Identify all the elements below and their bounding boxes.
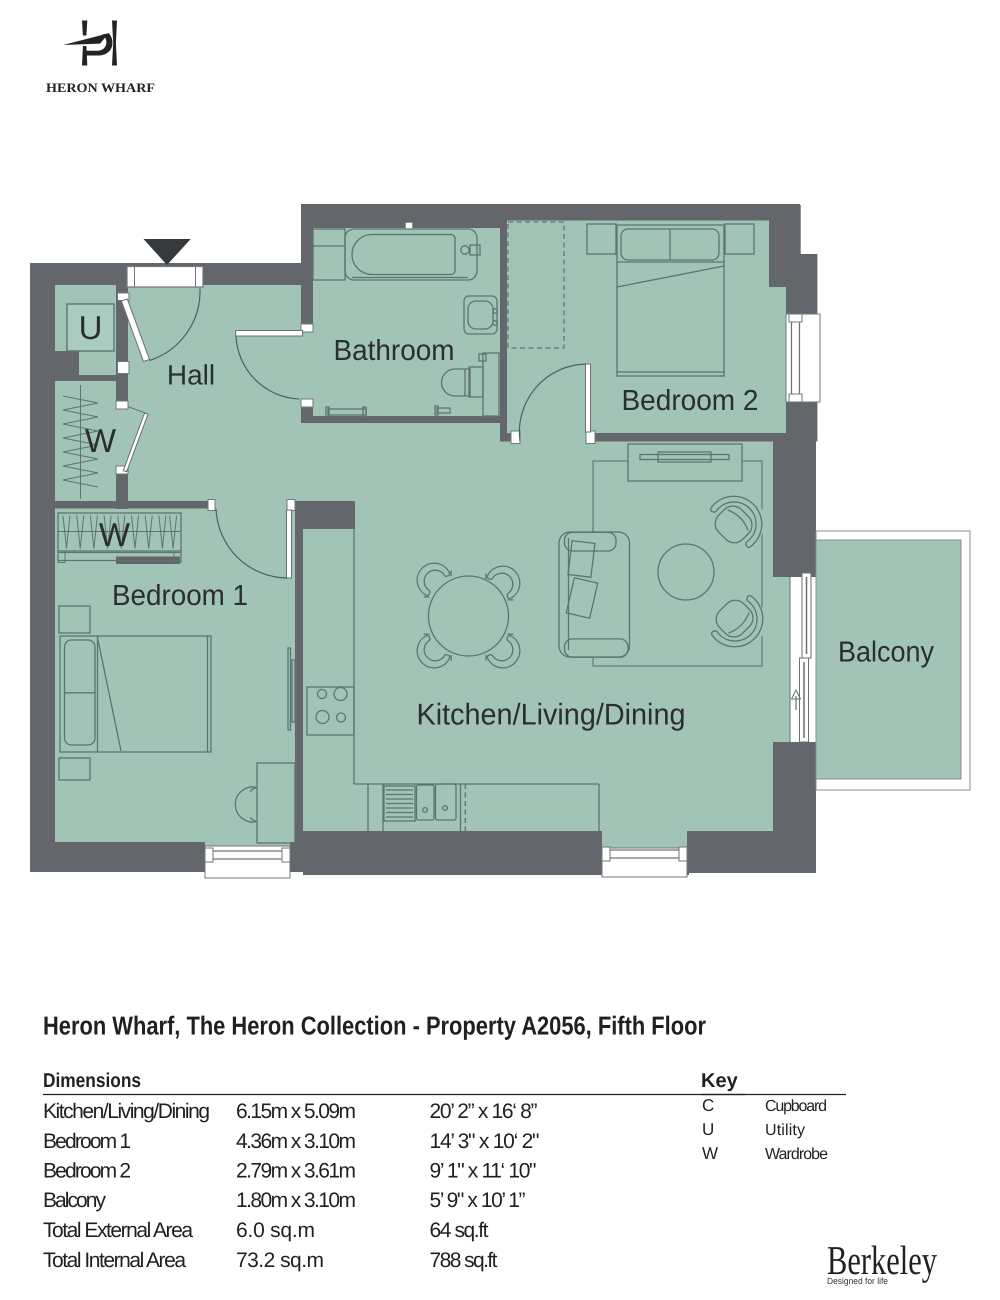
svg-text:Kitchen/Living/Dining: Kitchen/Living/Dining <box>417 699 686 732</box>
svg-text:W: W <box>85 422 117 459</box>
svg-text:W: W <box>702 1144 718 1163</box>
svg-text:Total Internal Area: Total Internal Area <box>43 1249 186 1272</box>
svg-text:Balcony: Balcony <box>838 637 934 669</box>
svg-text:Bedroom 1: Bedroom 1 <box>112 580 248 612</box>
svg-text:1.80m x 3.10m: 1.80m x 3.10m <box>236 1189 356 1212</box>
svg-text:Total External Area: Total External Area <box>43 1219 193 1242</box>
svg-text:5’ 9" x 10’ 1”: 5’ 9" x 10’ 1” <box>430 1189 526 1212</box>
svg-text:4.36m x 3.10m: 4.36m x 3.10m <box>236 1130 356 1153</box>
svg-text:20’ 2” x 16‘ 8”: 20’ 2” x 16‘ 8” <box>430 1100 538 1123</box>
svg-text:Bedroom 2: Bedroom 2 <box>43 1160 131 1183</box>
svg-text:Bedroom 2: Bedroom 2 <box>622 385 759 417</box>
svg-text:788 sq.ft: 788 sq.ft <box>430 1249 498 1272</box>
svg-text:6.0 sq.m: 6.0 sq.m <box>236 1219 315 1242</box>
svg-text:C: C <box>702 1096 714 1115</box>
svg-text:2.79m x 3.61m: 2.79m x 3.61m <box>236 1160 356 1183</box>
svg-text:Key: Key <box>701 1070 739 1092</box>
svg-text:73.2 sq.m: 73.2 sq.m <box>236 1249 324 1272</box>
svg-text:U: U <box>79 309 103 346</box>
svg-text:6.15m x 5.09m: 6.15m x 5.09m <box>236 1100 356 1123</box>
svg-text:64 sq.ft: 64 sq.ft <box>430 1219 489 1242</box>
svg-text:Hall: Hall <box>167 360 215 391</box>
svg-text:9’ 1" x 11‘ 10": 9’ 1" x 11‘ 10" <box>430 1160 537 1183</box>
svg-text:Dimensions: Dimensions <box>43 1070 141 1092</box>
svg-text:Kitchen/Living/Dining: Kitchen/Living/Dining <box>43 1100 210 1123</box>
svg-text:Wardrobe: Wardrobe <box>765 1146 828 1163</box>
svg-text:Balcony: Balcony <box>43 1189 107 1212</box>
svg-text:Designed for life: Designed for life <box>827 1276 888 1286</box>
svg-text:HERON WHARF: HERON WHARF <box>46 80 155 95</box>
svg-text:Bedroom 1: Bedroom 1 <box>43 1130 131 1153</box>
svg-text:U: U <box>702 1120 714 1139</box>
svg-text:Cupboard: Cupboard <box>765 1098 827 1115</box>
svg-text:Bathroom: Bathroom <box>334 335 455 367</box>
svg-text:Utility: Utility <box>765 1122 805 1139</box>
svg-text:Heron Wharf, The Heron Collect: Heron Wharf, The Heron Collection - Prop… <box>43 1011 706 1041</box>
svg-text:W: W <box>99 516 131 553</box>
svg-text:14’ 3" x 10‘ 2": 14’ 3" x 10‘ 2" <box>430 1130 540 1153</box>
